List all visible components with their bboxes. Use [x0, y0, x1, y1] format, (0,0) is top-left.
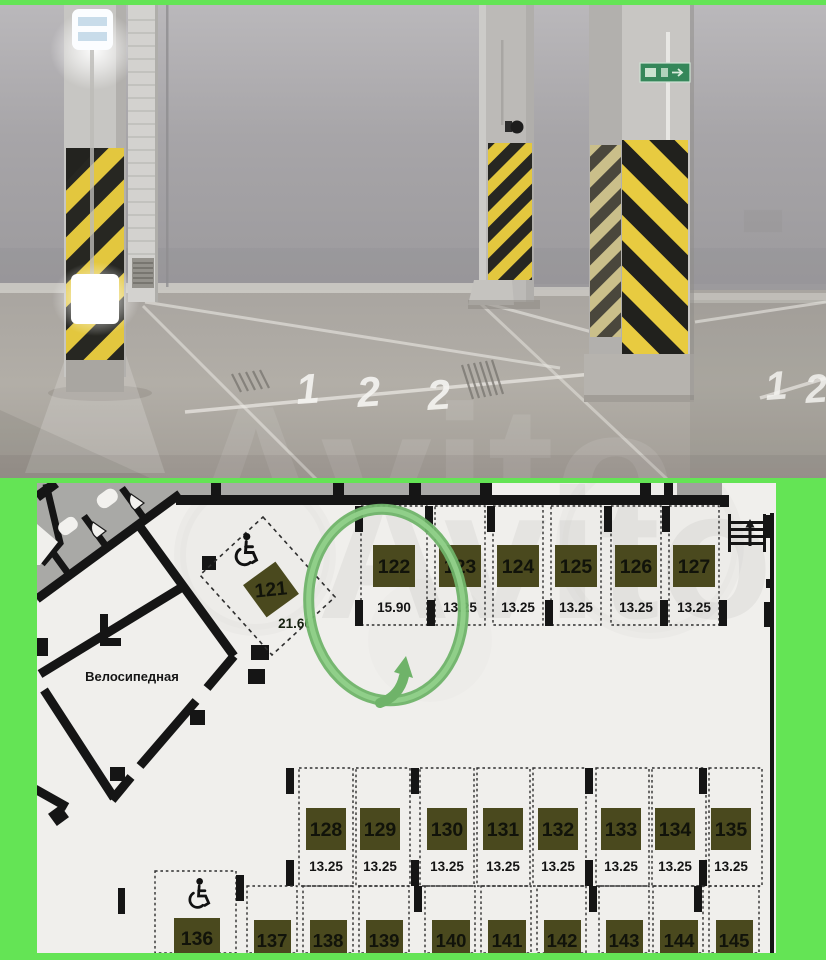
svg-text:124: 124 — [502, 556, 535, 578]
svg-text:121: 121 — [254, 577, 289, 602]
svg-text:141: 141 — [492, 930, 523, 951]
svg-text:13.25: 13.25 — [714, 859, 748, 874]
svg-text:125: 125 — [560, 556, 593, 578]
svg-text:138: 138 — [313, 930, 344, 951]
svg-text:2: 2 — [354, 367, 382, 416]
svg-text:127: 127 — [678, 556, 711, 578]
svg-text:129: 129 — [364, 819, 397, 841]
svg-text:137: 137 — [257, 930, 288, 951]
svg-text:126: 126 — [620, 556, 653, 578]
svg-text:135: 135 — [715, 819, 748, 841]
svg-text:15.90: 15.90 — [377, 600, 411, 615]
svg-text:136: 136 — [181, 928, 214, 950]
svg-text:13.25: 13.25 — [430, 859, 464, 874]
svg-text:13.25: 13.25 — [604, 859, 638, 874]
svg-text:122: 122 — [378, 556, 411, 578]
svg-text:13.25: 13.25 — [309, 859, 343, 874]
svg-text:1: 1 — [764, 364, 789, 409]
svg-text:139: 139 — [369, 930, 400, 951]
svg-text:13.25: 13.25 — [501, 600, 535, 615]
svg-text:13.25: 13.25 — [658, 859, 692, 874]
svg-text:13.25: 13.25 — [541, 859, 575, 874]
svg-text:13.25: 13.25 — [363, 859, 397, 874]
svg-text:143: 143 — [609, 930, 640, 951]
svg-text:131: 131 — [487, 819, 520, 841]
svg-text:13.25: 13.25 — [677, 600, 711, 615]
svg-text:128: 128 — [310, 819, 343, 841]
svg-text:130: 130 — [431, 819, 464, 841]
svg-text:145: 145 — [719, 930, 750, 951]
svg-text:13.25: 13.25 — [486, 859, 520, 874]
svg-text:Велосипедная: Велосипедная — [85, 669, 179, 684]
svg-text:1: 1 — [294, 364, 321, 413]
svg-text:142: 142 — [547, 930, 578, 951]
svg-text:140: 140 — [436, 930, 467, 951]
svg-text:133: 133 — [605, 819, 638, 841]
svg-text:134: 134 — [659, 819, 692, 841]
svg-text:2: 2 — [424, 370, 452, 419]
svg-text:132: 132 — [542, 819, 575, 841]
svg-text:13.25: 13.25 — [619, 600, 653, 615]
svg-text:144: 144 — [664, 930, 696, 951]
svg-text:2: 2 — [803, 367, 826, 413]
svg-text:13.25: 13.25 — [559, 600, 593, 615]
